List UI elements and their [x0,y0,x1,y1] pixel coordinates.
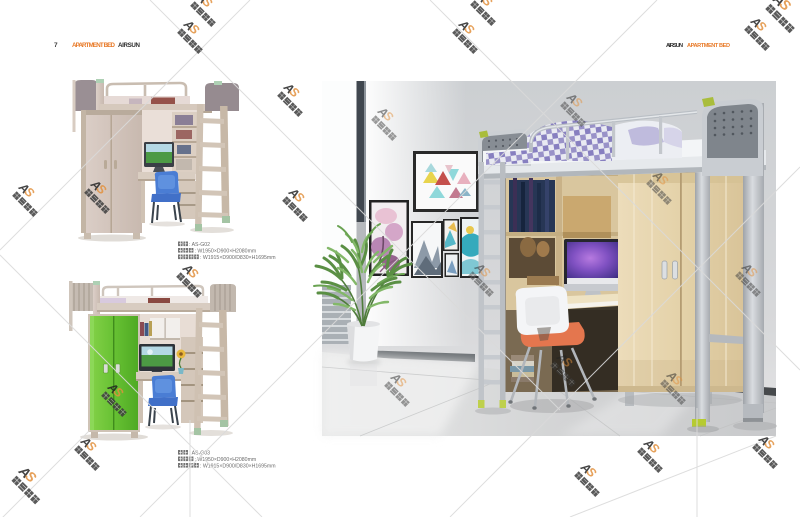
svg-text:: W1950×D900×H2080mm: : W1950×D900×H2080mm [195,249,257,255]
svg-text:APARTMENT BED: APARTMENT BED [687,43,730,49]
svg-text:APARTMENT BED: APARTMENT BED [72,42,116,49]
svg-text:: AS-G03: : AS-G03 [189,451,210,457]
svg-text:AIRSUN: AIRSUN [118,42,141,49]
svg-text:AIRSUN: AIRSUN [666,43,683,49]
svg-text:: AS-G02: : AS-G02 [189,242,210,248]
svg-text:: W1915×D900/D830×H1695mm: : W1915×D900/D830×H1695mm [200,255,276,261]
svg-text:: W1950×D900×H2080mm: : W1950×D900×H2080mm [195,457,257,463]
svg-text:7: 7 [54,42,58,49]
